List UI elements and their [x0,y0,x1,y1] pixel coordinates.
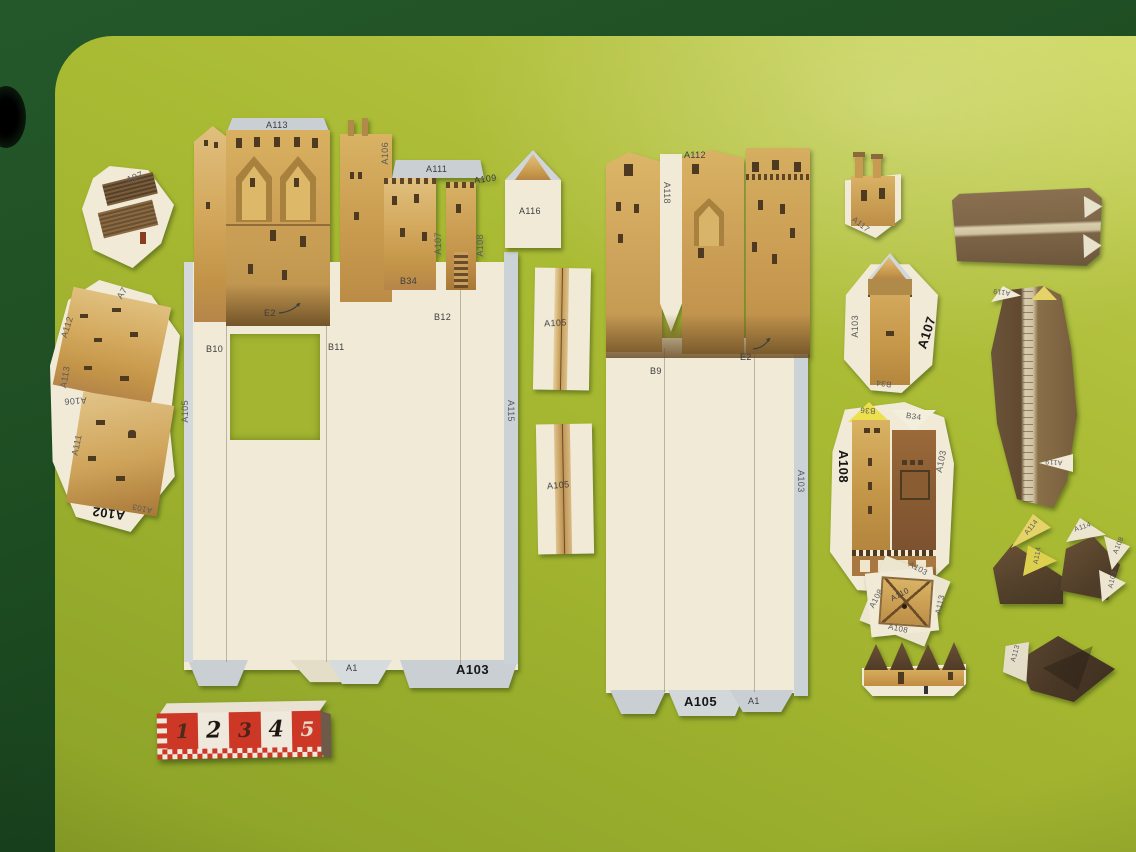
piece-strip-a105-top: A105 [533,268,591,391]
sheet2-tab-b9: B9 [650,366,662,376]
ruler-seg-2: 2 [198,712,230,749]
piece-tower-a107: A103 A107 B34 [842,253,938,393]
sheet1-bold-a103: A103 [456,662,489,677]
ruler-number-2: 2 [206,717,222,743]
piece-wall-group-a102: A7 A112 A113 A106 A111 A102 A103 [50,280,180,532]
ruler-seg-1: 1 [167,713,199,750]
tower-a108-tab-b36: B36 [860,405,876,415]
dark-object-edge [0,86,26,148]
piece-roof-curved-a119: A119 A119 [983,286,1083,508]
sheet1-tab-a106: A106 [380,142,390,165]
piece-a117: A117 [843,152,905,242]
ruler-number-5: 5 [300,717,314,741]
sheet1-tab-b12: B12 [434,312,451,322]
ruler-front-face: 1 2 3 4 5 [157,711,324,750]
strip-a105-top-label: A105 [544,317,567,328]
sheet1-col-a107: A107 [433,232,443,255]
photo-canvas: A97 A7 A112 A113 A106 A111 A102 A103 [0,0,1136,852]
sheet1-label-a113: A113 [266,120,288,130]
piece-roof-white-tabs: A114 A108 A103 [1052,518,1130,606]
ruler-seg-5: 5 [291,711,323,748]
ruler-number-1: 1 [175,719,189,743]
strip-a105-bottom-label: A105 [547,479,570,491]
sheet2-e2-arrow [752,334,776,350]
piece-roof-a113: A113 [1003,636,1115,704]
piece-strip-a105-bottom: A105 [536,424,594,555]
ruler-end-face [321,711,332,758]
sheet2-label-e2: E2 [740,352,752,362]
ruler-checker-strip [157,747,323,760]
piece-four-towers [862,642,970,702]
ruler-number-4: 4 [268,716,284,742]
sheet2-bold-a105: A105 [684,694,717,709]
ruler-end-dots [157,713,168,749]
sheet1-tab-b34: B34 [400,276,417,286]
tower-a107-edge-a103: A103 [850,315,860,338]
piece-a116-label: A116 [519,206,541,216]
piece-a116: A116 [505,150,561,250]
sheet2-tab-a112: A112 [684,150,706,160]
piece-wall-strip-right [952,187,1105,270]
roof-curved-tab-right: A119 [1045,457,1063,465]
sheet1-tab-b11: B11 [328,342,345,352]
sheet1-tab-a111: A111 [426,164,447,174]
ruler-seg-4: 4 [260,711,292,748]
sheet1-e2-arrow [278,300,304,314]
ruler-number-3: 3 [238,718,252,742]
sheet1-tab-a1: A1 [346,663,358,673]
scale-ruler: 1 2 3 4 5 [157,700,332,761]
piece-sheet1-a103: A113 A106 A111 A109 A107 A108 B34 B12 B1… [178,112,524,690]
ruler-seg-3: 3 [229,712,261,749]
sheet1-col-a108: A108 [475,234,485,257]
wall-group-edge-a106: A106 [64,395,87,407]
tower-a107-tab-b34: B34 [875,378,892,389]
roof-curved-tab-top: A119 [993,287,1011,296]
sheet1-edge-a105: A105 [180,400,190,423]
sheet2-tab-a1: A1 [748,696,760,706]
piece-a97: A97 [82,166,174,268]
sheet1-label-e2: E2 [264,308,276,318]
sheet1-edge-a115: A115 [506,400,516,422]
piece-pyramid-a110: A110 A108 A103 A113 A108 [864,560,948,644]
piece-sheet2-a105: A112 A118 B9 E2 A103 A105 A1 [602,138,820,722]
tower-a108-bold-a108: A108 [836,450,851,483]
sheet1-tab-b10: B10 [206,344,223,354]
tower-a108-tab-b34: B34 [905,411,922,422]
sheet1-tab-a109: A109 [473,172,497,185]
sheet2-edge-a103: A103 [796,470,806,493]
sheet2-col-a118: A118 [662,182,672,204]
